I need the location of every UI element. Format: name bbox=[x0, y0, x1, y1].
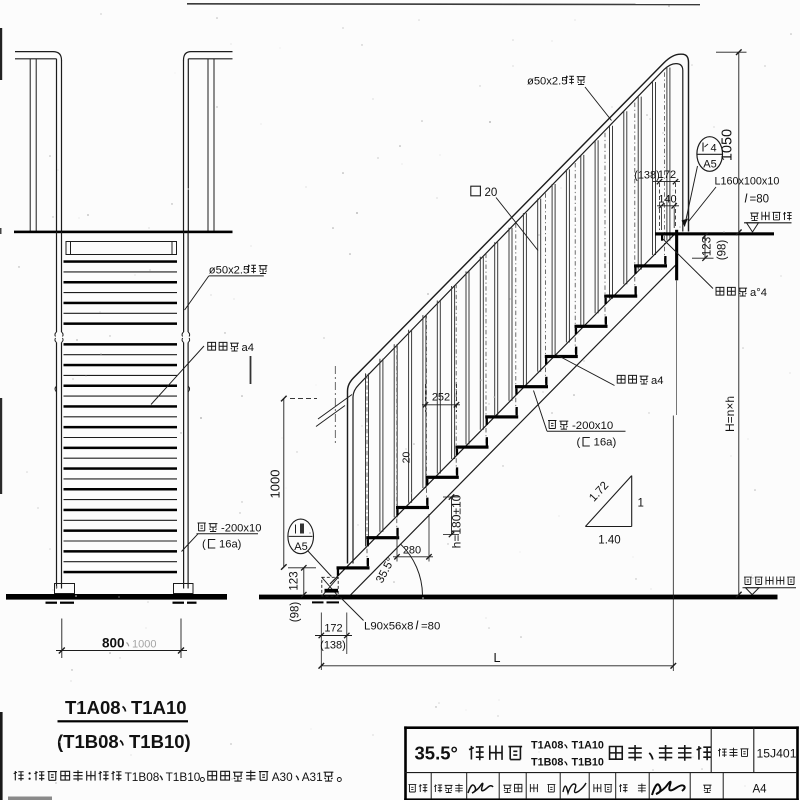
svg-text:T1B10: T1B10 bbox=[572, 757, 604, 769]
svg-text:20: 20 bbox=[485, 187, 498, 199]
svg-text:=80: =80 bbox=[421, 621, 440, 633]
svg-text:(: ( bbox=[577, 437, 581, 449]
svg-text:-200x10: -200x10 bbox=[221, 523, 261, 535]
svg-text:A30: A30 bbox=[272, 770, 293, 784]
svg-text:ø50x2.5: ø50x2.5 bbox=[209, 265, 249, 277]
svg-text:a°4: a°4 bbox=[750, 287, 767, 299]
svg-text:140: 140 bbox=[658, 194, 676, 206]
svg-text:1050: 1050 bbox=[720, 129, 736, 161]
svg-text:16a): 16a) bbox=[219, 539, 242, 551]
svg-text:800: 800 bbox=[102, 636, 125, 651]
svg-text:20: 20 bbox=[401, 452, 413, 464]
svg-text:T1A08: T1A08 bbox=[531, 740, 563, 752]
svg-text:16a): 16a) bbox=[594, 437, 617, 449]
svg-text:1000: 1000 bbox=[267, 470, 282, 499]
svg-text:(98): (98) bbox=[290, 602, 302, 623]
svg-text:(T1B08: (T1B08 bbox=[57, 731, 119, 752]
svg-text:A5: A5 bbox=[294, 541, 307, 553]
svg-text:L90x56x8: L90x56x8 bbox=[364, 621, 413, 633]
svg-text:T1B10): T1B10) bbox=[129, 731, 191, 752]
svg-text:a4: a4 bbox=[242, 342, 254, 354]
svg-text:(98): (98) bbox=[717, 240, 729, 261]
svg-text:(: ( bbox=[202, 539, 206, 551]
svg-text:1.40: 1.40 bbox=[598, 535, 620, 547]
svg-text:1: 1 bbox=[638, 498, 644, 510]
svg-text:123: 123 bbox=[702, 237, 714, 256]
svg-text:A31: A31 bbox=[302, 770, 323, 784]
svg-text:ø50x2.5: ø50x2.5 bbox=[527, 76, 567, 88]
svg-text:l: l bbox=[416, 619, 419, 633]
svg-text:l: l bbox=[745, 192, 748, 206]
svg-text:h=180±10: h=180±10 bbox=[450, 494, 464, 548]
svg-text:T1A08: T1A08 bbox=[65, 697, 121, 718]
svg-text:(138): (138) bbox=[634, 170, 660, 182]
svg-text:A4: A4 bbox=[752, 784, 767, 796]
svg-text:L: L bbox=[494, 651, 501, 665]
svg-text:35.5°: 35.5° bbox=[415, 743, 458, 764]
svg-text:280: 280 bbox=[403, 545, 421, 557]
svg-text:4: 4 bbox=[710, 143, 716, 155]
svg-text:15J401: 15J401 bbox=[757, 747, 797, 761]
svg-text:-200x10: -200x10 bbox=[572, 420, 613, 432]
svg-text:T1B08: T1B08 bbox=[125, 770, 160, 784]
svg-text:L160x100x10: L160x100x10 bbox=[715, 176, 780, 188]
svg-text:T1B08: T1B08 bbox=[531, 757, 563, 769]
svg-text:T1A10: T1A10 bbox=[572, 740, 604, 752]
svg-text:H=n×h: H=n×h bbox=[723, 396, 737, 432]
svg-text:T1B10: T1B10 bbox=[166, 770, 201, 784]
svg-text:123: 123 bbox=[289, 571, 301, 590]
svg-text:172: 172 bbox=[658, 169, 676, 181]
svg-text:a4: a4 bbox=[651, 375, 663, 387]
svg-text:1000: 1000 bbox=[132, 639, 156, 651]
svg-text:(138): (138) bbox=[320, 640, 346, 652]
svg-text:T1A10: T1A10 bbox=[131, 697, 187, 718]
svg-text:252: 252 bbox=[432, 392, 450, 404]
svg-text:=80: =80 bbox=[750, 194, 770, 206]
svg-text:172: 172 bbox=[324, 623, 342, 635]
